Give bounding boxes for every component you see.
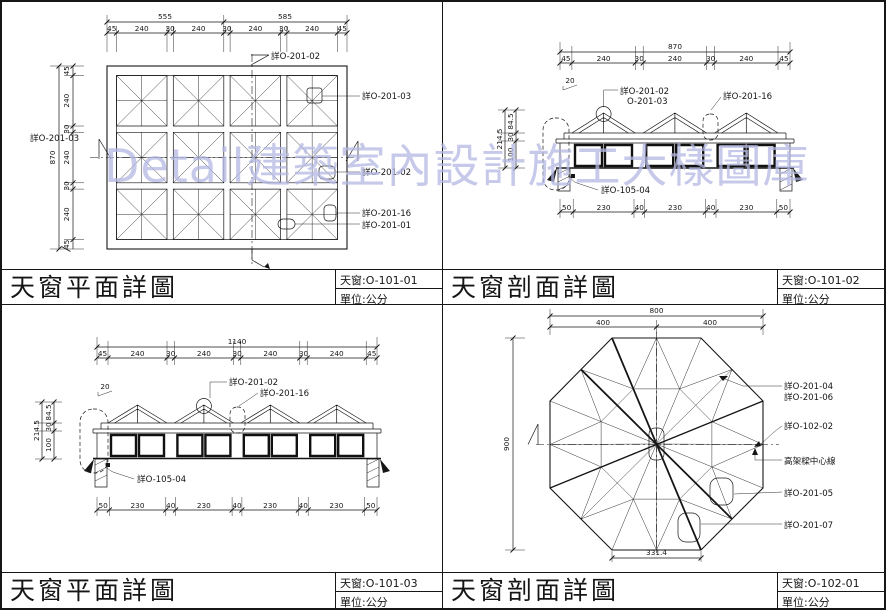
unit-label: 單位:公分 — [336, 592, 442, 610]
dim-label: 240 — [192, 24, 206, 33]
slope-label: 20 — [565, 76, 575, 85]
panel-skylight-octagon: 800 400 400 900 331.4 詳O-201-04 詳O-201-0… — [443, 305, 884, 608]
detail-label: 詳O-201-06 — [784, 391, 833, 403]
sheet-number: 天窗:O-101-01 — [336, 270, 442, 289]
detail-label: 詳O-201-01 — [362, 219, 411, 231]
detail-label: 詳O-102-02 — [784, 420, 833, 432]
dim-label: 240 — [305, 24, 319, 33]
dim-label: 30 — [706, 54, 716, 63]
sheet-info-block: 天窗:O-101-02 單位:公分 — [777, 270, 884, 305]
title-strip: 天窗剖面詳圖 天窗:O-102-01 單位:公分 — [443, 572, 884, 608]
dim-label: 240 — [131, 349, 145, 358]
dim-label: 870 — [668, 42, 682, 51]
detail-label: 詳O-201-03 — [30, 132, 79, 144]
detail-label: 詳O-201-02 — [271, 50, 320, 62]
dim-label: 40 — [299, 501, 309, 510]
dim-label: 230 — [197, 501, 211, 510]
dim-label: 230 — [739, 203, 753, 212]
octagon-drawing-svg: 800 400 400 900 331.4 詳O-201-04 詳O-201-0… — [443, 305, 884, 572]
dim-label: 331.4 — [646, 548, 667, 557]
dim-label: 30 — [232, 349, 242, 358]
detail-label: 詳O-201-02 — [229, 376, 278, 388]
plan-drawing-svg: 555 585 45 240 30 240 30 240 30 240 45 8… — [2, 2, 443, 269]
dim-label: 45 — [62, 66, 71, 75]
dim-label: 100 — [44, 438, 53, 452]
detail-label: 詳O-201-16 — [260, 387, 309, 399]
dim-label: 870 — [48, 150, 57, 164]
unit-label: 單位:公分 — [778, 592, 884, 610]
detail-callouts: 詳O-201-02 O-201-03 詳O-201-16 詳O-105-04 — [601, 85, 772, 196]
slope-label: 20 — [100, 382, 110, 391]
detail-label: 詳O-201-05 — [784, 487, 833, 499]
drawing-area: 800 400 400 900 331.4 詳O-201-04 詳O-201-0… — [443, 305, 884, 572]
section-drawing-svg: 1140 45 240 30 240 30 240 30 240 45 50 2… — [2, 305, 443, 572]
panel-title: 天窗剖面詳圖 — [443, 270, 777, 305]
title-strip: 天窗平面詳圖 天窗:O-101-01 單位:公分 — [2, 269, 442, 305]
panel-skylight-section-1: 870 45 240 30 240 30 240 45 50 230 40 23… — [443, 2, 884, 305]
dim-label: 30 — [506, 132, 515, 142]
dim-label: 240 — [62, 93, 71, 107]
dim-label: 585 — [278, 12, 292, 21]
title-strip: 天窗剖面詳圖 天窗:O-101-02 單位:公分 — [443, 269, 884, 305]
dim-label: 240 — [62, 150, 71, 164]
dim-label: 230 — [263, 501, 277, 510]
dim-label: 30 — [279, 24, 289, 33]
dim-label: 230 — [131, 501, 145, 510]
gable-roofs — [556, 113, 794, 143]
drawing-area: 555 585 45 240 30 240 30 240 30 240 45 8… — [2, 2, 442, 269]
section-drawing-svg: 870 45 240 30 240 30 240 45 50 230 40 23… — [443, 2, 884, 269]
dim-label: 30 — [165, 24, 175, 33]
dim-label: 30 — [166, 349, 176, 358]
end-walls — [80, 409, 390, 487]
dim-label: 45 — [367, 349, 376, 358]
dim-label: 230 — [668, 203, 682, 212]
window-band — [556, 143, 794, 168]
panel-title: 天窗平面詳圖 — [2, 270, 335, 305]
title-strip: 天窗平面詳圖 天窗:O-101-03 單位:公分 — [2, 572, 442, 608]
dim-label: 50 — [562, 203, 572, 212]
dim-label: 240 — [668, 54, 682, 63]
dim-label: 240 — [135, 24, 149, 33]
panel-skylight-plan-1: 555 585 45 240 30 240 30 240 30 240 45 8… — [2, 2, 443, 305]
dim-label: 800 — [650, 306, 664, 315]
sheet-number: 天窗:O-101-02 — [778, 270, 884, 289]
detail-callouts: 詳O-201-02 詳O-201-16 詳O-105-04 — [137, 376, 309, 485]
dim-label: 30 — [635, 54, 645, 63]
detail-markers — [98, 382, 258, 479]
detail-callouts: 詳O-201-04 詳O-201-06 詳O-102-02 高架樑中心線 詳O-… — [784, 380, 836, 531]
gable-roofs — [93, 405, 381, 433]
sheet-number: 天窗:O-102-01 — [778, 573, 884, 592]
dim-label: 400 — [596, 318, 610, 327]
section-flag — [528, 424, 538, 445]
dim-label: 45 — [62, 240, 71, 249]
detail-callouts: 詳O-201-02 詳O-201-03 詳O-201-03 詳O-201-02 … — [30, 50, 411, 231]
sheet-info-block: 天窗:O-102-01 單位:公分 — [777, 573, 884, 608]
dim-label: 240 — [248, 24, 262, 33]
detail-label: 詳O-201-02 — [620, 85, 669, 97]
dim-label: 45 — [338, 24, 347, 33]
dim-label: 84.5 — [506, 113, 515, 129]
dim-label: 40 — [166, 501, 176, 510]
dimension-lines — [35, 337, 380, 516]
dim-label: 30 — [62, 124, 71, 134]
leader-lines — [701, 376, 782, 524]
dim-label: 230 — [597, 203, 611, 212]
quadrant-grid: 555 585 45 240 30 240 30 240 30 240 45 8… — [2, 2, 884, 608]
dim-label: 240 — [263, 349, 277, 358]
dim-label: 214.5 — [495, 129, 504, 150]
detail-label: O-201-03 — [627, 97, 668, 107]
dim-label: 45 — [98, 349, 107, 358]
dim-label: 1140 — [228, 337, 247, 346]
window-band — [93, 433, 381, 459]
sheet-info-block: 天窗:O-101-01 單位:公分 — [335, 270, 442, 305]
drawing-area: 870 45 240 30 240 30 240 45 50 230 40 23… — [443, 2, 884, 269]
detail-label: 詳O-201-16 — [362, 207, 411, 219]
dimension-lines — [50, 15, 350, 252]
panel-title: 天窗剖面詳圖 — [443, 573, 777, 608]
dim-label: 240 — [62, 207, 71, 221]
dim-label: 30 — [62, 181, 71, 191]
panel-skylight-section-2: 1140 45 240 30 240 30 240 30 240 45 50 2… — [2, 305, 443, 608]
detail-label: 詳O-105-04 — [137, 473, 186, 485]
sheet-info-block: 天窗:O-101-03 單位:公分 — [335, 573, 442, 608]
dim-label: 40 — [635, 203, 645, 212]
dim-label: 240 — [597, 54, 611, 63]
dim-label: 40 — [232, 501, 242, 510]
dim-label: 50 — [98, 501, 108, 510]
dim-label: 50 — [779, 203, 789, 212]
dim-label: 100 — [506, 147, 515, 161]
detail-label: 詳O-201-04 — [784, 380, 833, 392]
dim-label: 400 — [703, 318, 717, 327]
dim-label: 45 — [779, 54, 788, 63]
section-flags — [99, 55, 358, 269]
dimension-text: 1140 45 240 30 240 30 240 30 240 45 50 2… — [32, 337, 376, 510]
detail-label: 詳O-201-03 — [362, 90, 411, 102]
dim-label: 50 — [366, 501, 376, 510]
detail-label: 詳O-105-04 — [601, 184, 650, 196]
dim-label: 900 — [502, 437, 511, 451]
detail-label: 高架樑中心線 — [784, 455, 836, 467]
dim-label: 555 — [158, 12, 172, 21]
detail-label: 詳O-201-02 — [362, 166, 411, 178]
dim-label: 45 — [561, 54, 570, 63]
dim-label: 30 — [44, 422, 53, 432]
detail-label: 詳O-201-07 — [784, 519, 833, 531]
dim-label: 214.5 — [32, 420, 41, 441]
dim-label: 45 — [107, 24, 116, 33]
dim-label: 230 — [329, 501, 343, 510]
sheet-number: 天窗:O-101-03 — [336, 573, 442, 592]
dim-label: 240 — [197, 349, 211, 358]
panel-title: 天窗平面詳圖 — [2, 573, 335, 608]
drawing-sheet: 555 585 45 240 30 240 30 240 30 240 45 8… — [0, 0, 886, 610]
dim-label: 240 — [330, 349, 344, 358]
dim-label: 84.5 — [44, 404, 53, 420]
dim-label: 30 — [222, 24, 232, 33]
detail-label: 詳O-201-16 — [723, 90, 772, 102]
dim-label: 30 — [299, 349, 309, 358]
dim-label: 240 — [739, 54, 753, 63]
dim-label: 40 — [706, 203, 716, 212]
drawing-area: 1140 45 240 30 240 30 240 30 240 45 50 2… — [2, 305, 442, 572]
